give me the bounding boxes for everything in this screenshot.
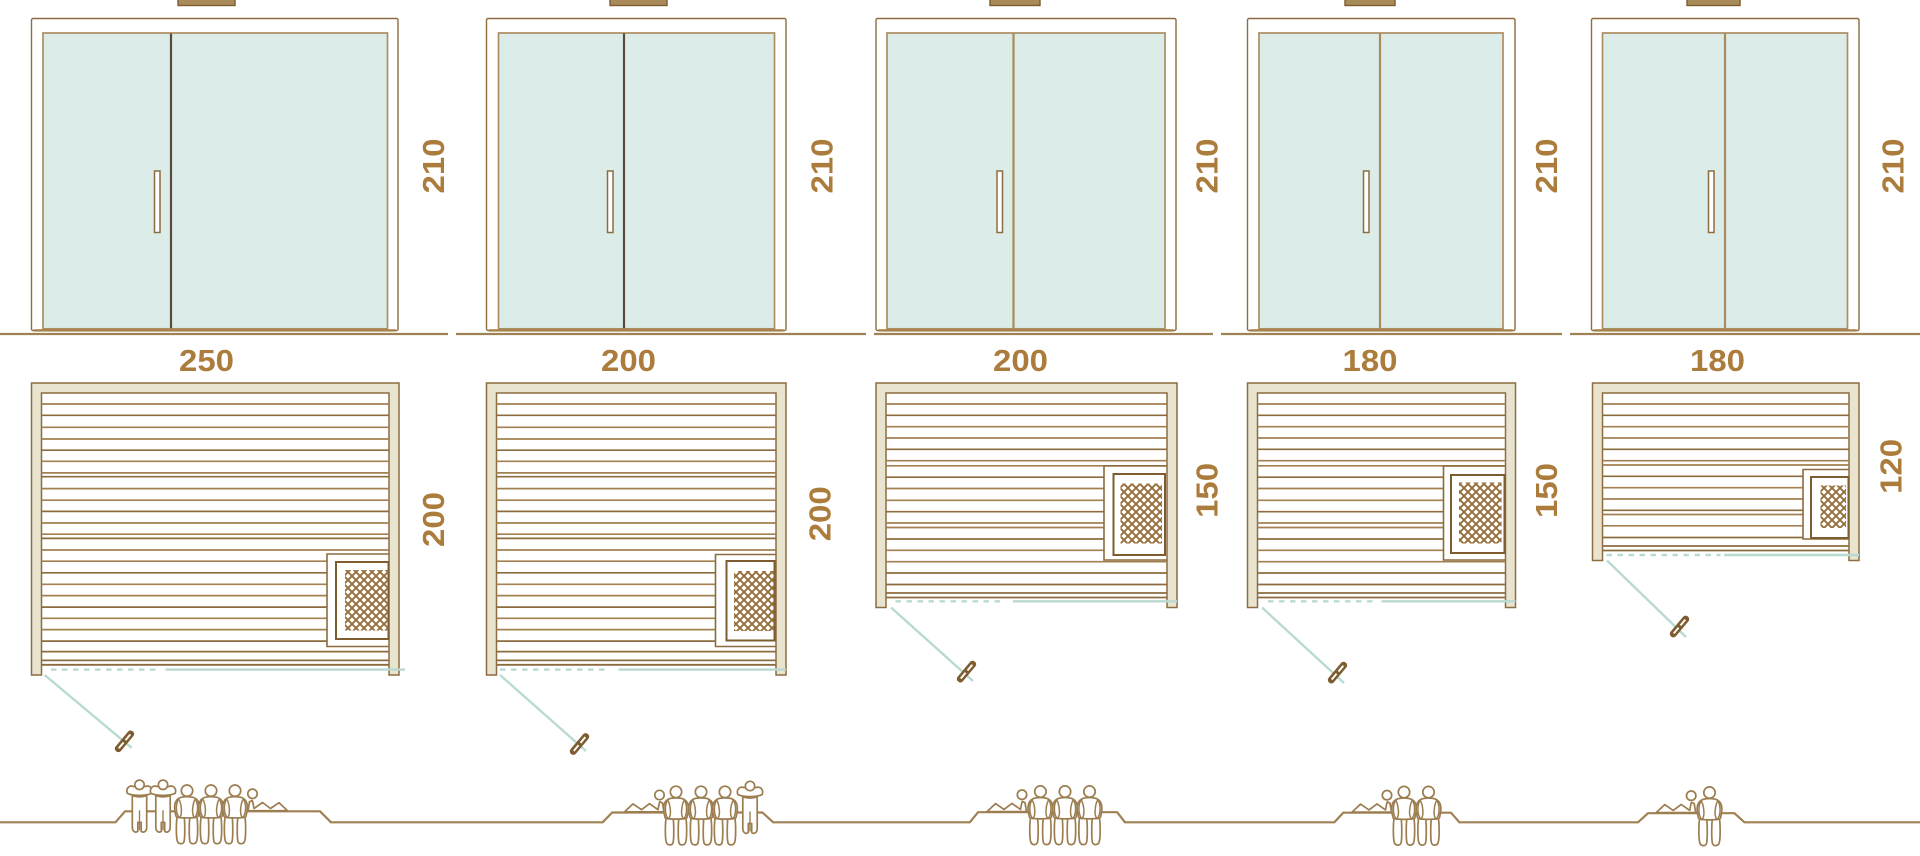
svg-text:200: 200 [803,486,838,541]
svg-text:210: 210 [805,139,840,194]
svg-text:250: 250 [179,343,234,378]
svg-text:210: 210 [1529,139,1564,194]
svg-text:200: 200 [993,343,1048,378]
svg-text:200: 200 [601,343,656,378]
svg-text:180: 180 [1343,343,1398,378]
svg-text:210: 210 [1190,139,1225,194]
svg-text:150: 150 [1189,463,1224,518]
svg-text:210: 210 [416,139,451,194]
svg-text:150: 150 [1529,463,1564,518]
svg-text:200: 200 [416,492,451,547]
svg-text:180: 180 [1690,343,1745,378]
svg-text:210: 210 [1876,139,1911,194]
svg-text:120: 120 [1874,439,1909,494]
